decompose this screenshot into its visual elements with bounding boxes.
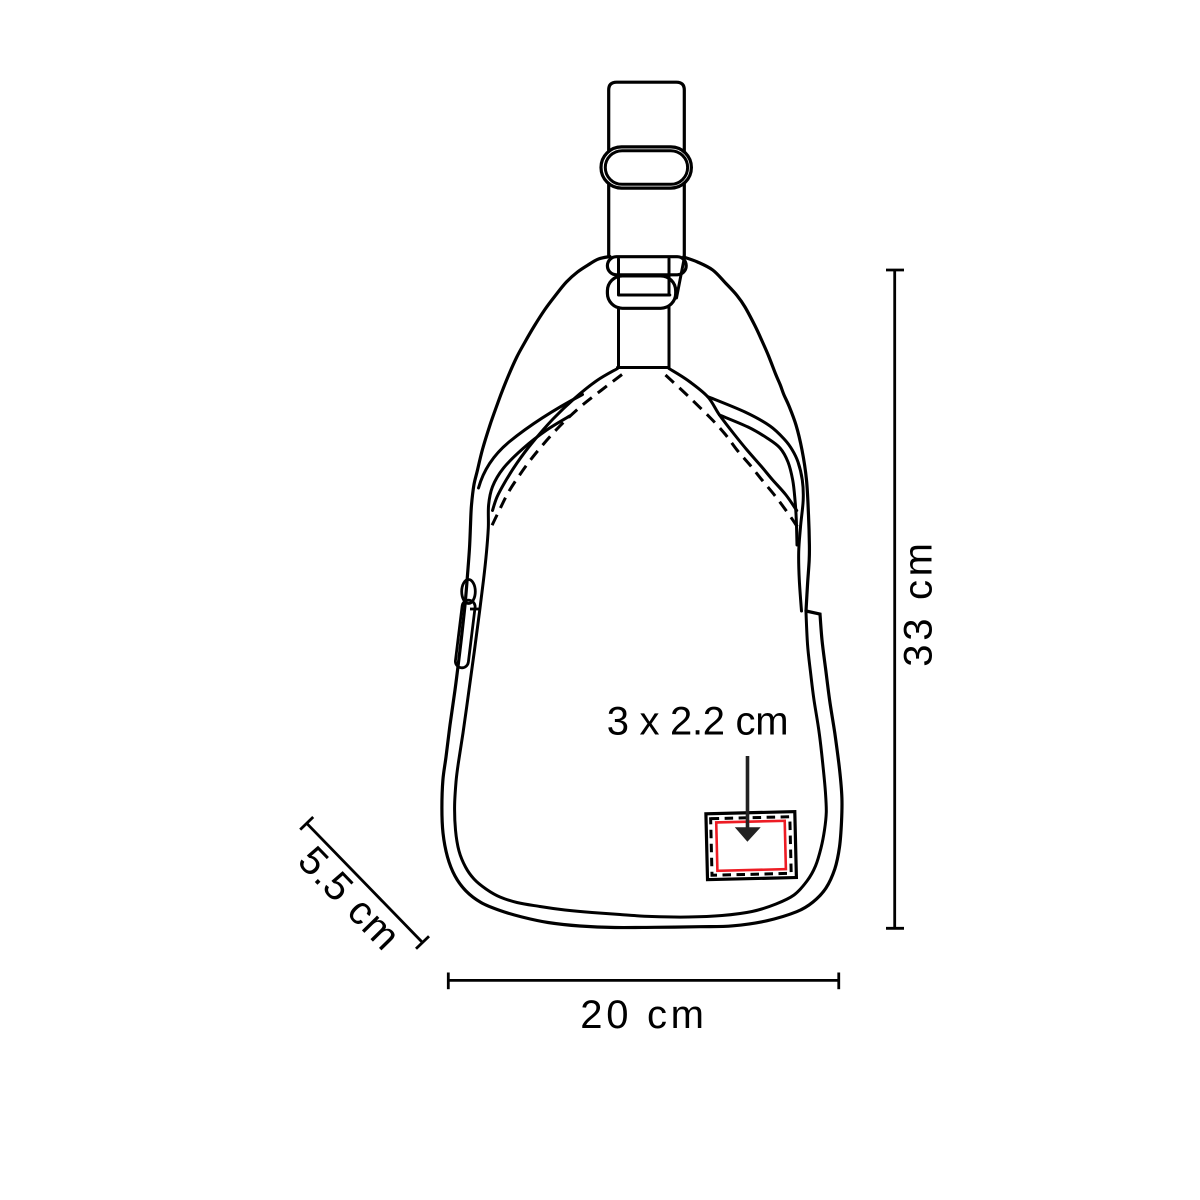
svg-text:3 x 2.2 cm: 3 x 2.2 cm [607,699,789,743]
svg-text:33 cm: 33 cm [896,539,940,666]
svg-text:20 cm: 20 cm [580,993,707,1037]
